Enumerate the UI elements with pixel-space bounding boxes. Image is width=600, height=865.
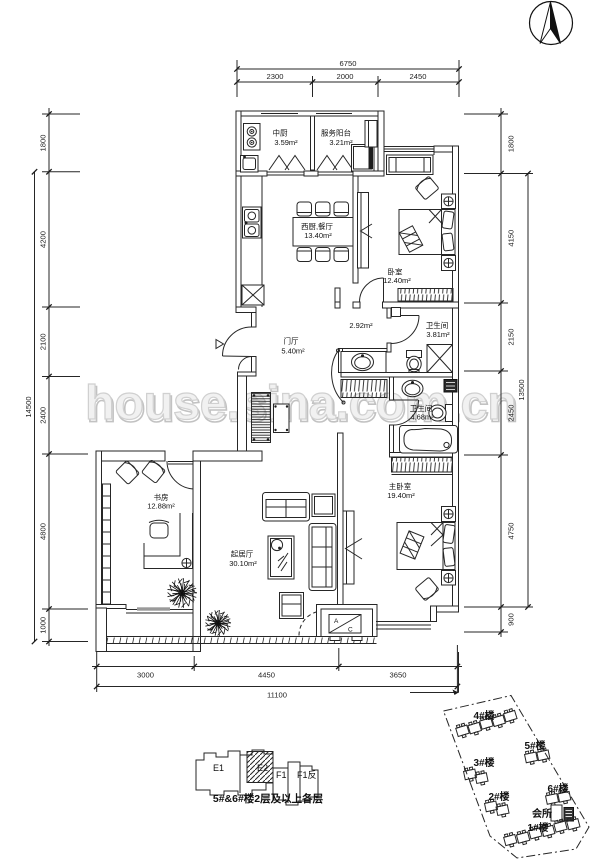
svg-text:4#楼: 4#楼 (473, 709, 494, 722)
svg-text:6750: 6750 (340, 59, 357, 68)
svg-text:4150: 4150 (507, 230, 516, 247)
svg-text:5.40m²: 5.40m² (281, 347, 305, 356)
svg-text:1800: 1800 (39, 135, 48, 152)
svg-text:13500: 13500 (517, 379, 526, 400)
svg-text:3.21m²: 3.21m² (329, 138, 353, 147)
svg-text:2100: 2100 (39, 333, 48, 350)
svg-text:卧室: 卧室 (388, 267, 403, 277)
svg-text:2000: 2000 (337, 72, 354, 81)
svg-text:主卧室: 主卧室 (389, 481, 412, 491)
svg-text:1#楼: 1#楼 (527, 821, 548, 834)
svg-text:2#楼: 2#楼 (488, 790, 509, 803)
svg-text:1000: 1000 (39, 617, 48, 634)
svg-text:30.10m²: 30.10m² (229, 559, 257, 568)
svg-text:2150: 2150 (507, 329, 516, 346)
svg-text:1800: 1800 (507, 135, 516, 152)
svg-text:2450: 2450 (410, 72, 427, 81)
svg-text:会所: 会所 (532, 807, 552, 820)
svg-text:中厨: 中厨 (273, 128, 288, 138)
svg-text:C: C (348, 627, 353, 634)
svg-text:13.40m²: 13.40m² (304, 231, 332, 240)
svg-text:14500: 14500 (24, 396, 33, 417)
svg-text:3#楼: 3#楼 (473, 756, 494, 769)
svg-text:3000: 3000 (137, 671, 154, 680)
svg-text:2400: 2400 (39, 407, 48, 424)
svg-text:19.40m²: 19.40m² (387, 491, 415, 500)
svg-text:卫生间: 卫生间 (410, 403, 433, 413)
svg-text:5#&6#楼2层及以上各层: 5#&6#楼2层及以上各层 (213, 792, 324, 805)
svg-text:5#楼: 5#楼 (524, 739, 545, 752)
svg-text:卫生间: 卫生间 (426, 320, 449, 330)
svg-text:12.40m²: 12.40m² (383, 276, 411, 285)
svg-text:2.92m²: 2.92m² (349, 321, 373, 330)
svg-text:书房: 书房 (154, 492, 169, 502)
svg-text:E2: E2 (257, 763, 268, 773)
svg-text:4.68m²: 4.68m² (410, 413, 434, 422)
svg-text:11100: 11100 (267, 691, 287, 700)
svg-text:4200: 4200 (39, 231, 48, 248)
svg-text:2450: 2450 (507, 405, 516, 422)
svg-text:6#楼: 6#楼 (547, 782, 568, 795)
svg-text:E1: E1 (213, 763, 224, 773)
svg-text:3.59m²: 3.59m² (274, 138, 298, 147)
svg-text:4750: 4750 (507, 523, 516, 540)
svg-text:12.88m²: 12.88m² (147, 502, 175, 511)
svg-text:服务阳台: 服务阳台 (321, 128, 351, 138)
svg-text:F1反: F1反 (297, 770, 317, 780)
svg-text:A: A (334, 618, 339, 625)
svg-text:门厅: 门厅 (284, 337, 299, 346)
svg-text:4800: 4800 (39, 523, 48, 540)
svg-text:起居厅: 起居厅 (231, 550, 254, 559)
svg-text:F1: F1 (276, 770, 287, 780)
svg-text:3.81m²: 3.81m² (426, 330, 450, 339)
svg-text:4450: 4450 (258, 671, 275, 680)
svg-text:2300: 2300 (267, 72, 284, 81)
svg-text:西厨,餐厅: 西厨,餐厅 (301, 222, 334, 231)
svg-text:3650: 3650 (390, 671, 407, 680)
svg-text:900: 900 (507, 613, 516, 626)
